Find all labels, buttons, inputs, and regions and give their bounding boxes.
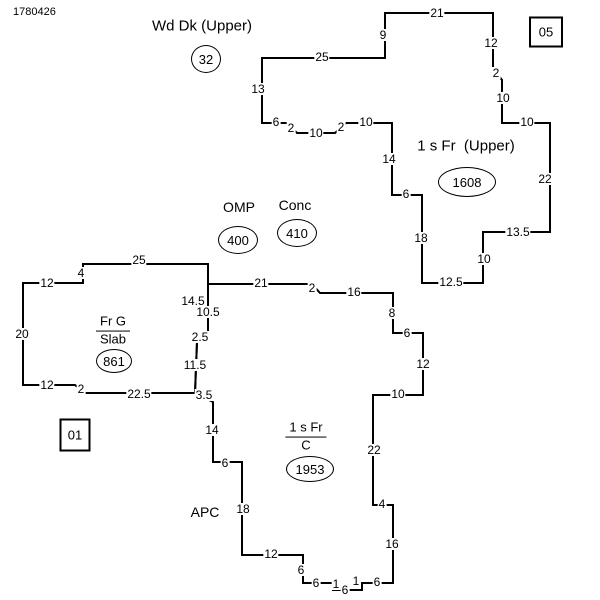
label-apc: APC	[191, 505, 220, 519]
dimension-label: 18	[235, 503, 250, 515]
dimension-label: 6	[297, 564, 306, 576]
sequence-box-01: 01	[60, 419, 91, 452]
dimension-label: 6	[341, 584, 350, 596]
dimension-label: 9	[379, 29, 388, 41]
dimension-label: 2.5	[191, 331, 210, 343]
dimension-label: 10	[390, 388, 405, 400]
label-1s-fr-c-bottom: C	[285, 438, 326, 454]
area-fr-g-slab: 861	[96, 349, 132, 373]
dimension-label: 6	[402, 188, 411, 200]
dimension-label: 16	[346, 286, 361, 298]
dimension-label: 6	[312, 577, 321, 589]
dimension-label: 12	[263, 548, 278, 560]
dimension-label: 4	[378, 498, 387, 510]
label-conc: Conc	[279, 198, 312, 212]
dimension-label: 12	[483, 37, 498, 49]
dimension-label: 2	[337, 121, 346, 133]
dimension-label: 3.5	[195, 389, 214, 401]
dimension-label: 1	[332, 578, 341, 590]
dimension-label: 10.5	[195, 306, 220, 318]
area-omp: 400	[218, 226, 258, 254]
dimension-label: 2	[492, 67, 501, 79]
dimension-label: 2	[77, 383, 86, 395]
dimension-label: 16	[384, 538, 399, 550]
sequence-box-05: 05	[529, 17, 563, 48]
label-1s-fr-upper: 1 s Fr (Upper)	[417, 139, 515, 154]
label-1s-fr-c: 1 s FrC	[285, 421, 326, 454]
dimension-label: 20	[14, 328, 29, 340]
dimension-label: 25	[314, 51, 329, 63]
dimension-label: 22	[537, 173, 552, 185]
dimension-label: 10	[476, 253, 491, 265]
area-wd-dk: 32	[191, 45, 221, 73]
dimension-label: 13	[250, 83, 265, 95]
sketch-page: 1780426 219251312210102213.51012.5186146…	[0, 0, 600, 600]
dimension-label: 12	[415, 358, 430, 370]
dimension-label: 2	[308, 282, 317, 294]
dimension-label: 22.5	[126, 388, 151, 400]
area-1s-fr-c: 1953	[286, 456, 334, 482]
dimension-label: 8	[388, 307, 397, 319]
dimension-label: 10	[308, 127, 323, 139]
dimension-label: 10	[495, 92, 510, 104]
dimension-label: 14	[381, 153, 396, 165]
sketch-canvas	[0, 0, 600, 600]
label-fr-g-slab-top: Fr G	[96, 315, 130, 332]
dimension-label: 25	[131, 254, 146, 266]
dimension-label: 6	[221, 457, 230, 469]
label-wd-dk-upper: Wd Dk (Upper)	[152, 19, 252, 34]
dimension-label: 6	[403, 327, 412, 339]
dimension-label: 11.5	[183, 359, 207, 371]
dimension-label: 12	[39, 379, 54, 391]
dimension-label: 6	[373, 576, 382, 588]
dimension-label: 4	[77, 267, 86, 279]
area-conc: 410	[277, 219, 317, 247]
dimension-label: 13.5	[505, 226, 530, 238]
dimension-label: 21	[253, 277, 268, 289]
label-fr-g-slab: Fr GSlab	[96, 315, 130, 348]
dimension-label: 10	[519, 116, 534, 128]
dimension-label: 22	[366, 444, 381, 456]
area-1s-fr-upper: 1608	[438, 167, 496, 197]
dimension-label: 6	[272, 116, 281, 128]
dimension-label: 12.5	[438, 276, 463, 288]
dimension-label: 14	[204, 424, 219, 436]
label-1s-fr-c-top: 1 s Fr	[285, 421, 326, 438]
label-fr-g-slab-bottom: Slab	[96, 332, 130, 348]
label-omp: OMP	[223, 200, 255, 214]
dimension-label: 2	[287, 122, 296, 134]
dimension-label: 21	[429, 7, 444, 19]
dimension-label: 10	[358, 116, 373, 128]
dimension-label: 18	[413, 232, 428, 244]
dimension-label: 1	[352, 575, 361, 587]
dimension-label: 12	[39, 277, 54, 289]
